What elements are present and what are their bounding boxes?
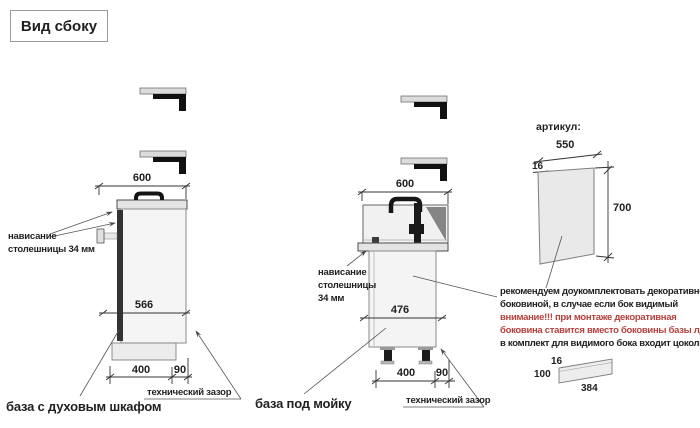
left-tech-gap-label: технический зазор — [147, 387, 231, 398]
oven-handle-connector — [104, 233, 117, 239]
note-line-3-warning: внимание!!! при монтаже декоративная — [500, 311, 676, 324]
left-cabinet-name: база с духовым шкафом — [6, 399, 161, 414]
left-overhang-label-line2: столешницы 34 мм — [8, 244, 95, 255]
faucet-stem — [414, 203, 421, 243]
decor-panel-drawing — [538, 168, 594, 264]
page-title: Вид сбоку — [10, 10, 108, 42]
countertop — [358, 243, 448, 251]
panel-dim-height: 700 — [613, 202, 631, 214]
panel-dim-700-lines — [595, 161, 614, 263]
wall-bracket-icon — [140, 151, 186, 174]
drawing-canvas — [0, 0, 700, 428]
oven-handle — [97, 229, 104, 243]
adjustable-leg-icon — [380, 347, 395, 364]
middle-tech-gap-label: технический зазор — [406, 395, 490, 406]
adjustable-leg-icon — [418, 347, 433, 364]
plinth-drawing — [559, 359, 612, 383]
left-dim-inner-width: 566 — [135, 299, 153, 311]
handle-icon — [136, 194, 162, 201]
left-dim-600-lines — [95, 183, 190, 199]
left-dim-plinth: 400 — [132, 364, 150, 376]
cabinet-body — [369, 251, 436, 347]
plinth — [112, 343, 176, 360]
middle-dim-inner-width: 476 — [391, 304, 409, 316]
middle-dim-plinth: 400 — [397, 367, 415, 379]
note-line-2: боковиной, в случае если бок видимый — [500, 298, 678, 311]
middle-dim-600-lines — [358, 189, 452, 204]
panel-dim-width: 550 — [556, 139, 574, 151]
faucet-mixer — [409, 224, 424, 234]
middle-overhang-label-line2: столешницы — [318, 280, 376, 291]
oven-door-strip — [117, 210, 123, 341]
middle-dim-gap: 90 — [436, 367, 448, 379]
article-label: артикул: — [536, 121, 581, 133]
wall-bracket-icon — [140, 88, 186, 111]
plinth-dim-thickness: 16 — [551, 356, 562, 367]
middle-overhang-label-line3: 34 мм — [318, 293, 344, 304]
middle-dim-top-width: 600 — [396, 178, 414, 190]
panel-dim-thickness: 16 — [532, 161, 543, 172]
countertop — [117, 200, 187, 209]
note-line-5: в комплект для видимого бока входит цоко… — [500, 337, 700, 350]
cabinet-body — [121, 209, 186, 343]
sink-drain — [372, 237, 379, 243]
middle-overhang-leader — [347, 251, 366, 266]
plinth-dim-height: 100 — [534, 369, 551, 380]
left-dim-top-width: 600 — [133, 172, 151, 184]
left-dim-gap: 90 — [174, 364, 186, 376]
wall-bracket-icon — [401, 96, 447, 119]
note-line-1: рекомендуем доукомплектовать декоративно… — [500, 285, 700, 298]
note-line-4-warning: боковина ставится вместо боковины базы л… — [500, 324, 700, 337]
plinth-dim-length: 384 — [581, 383, 598, 394]
oven-base-cabinet-drawing — [97, 194, 187, 361]
middle-name-leader — [304, 328, 386, 394]
left-overhang-label-line1: нависание — [8, 231, 56, 242]
middle-overhang-label-line1: нависание — [318, 267, 366, 278]
left-name-leader — [80, 330, 119, 396]
sink-cabinet-name: база под мойку — [255, 396, 351, 411]
technical-drawing-page: Вид сбоку 600 566 400 90 нависание столе… — [0, 0, 700, 428]
